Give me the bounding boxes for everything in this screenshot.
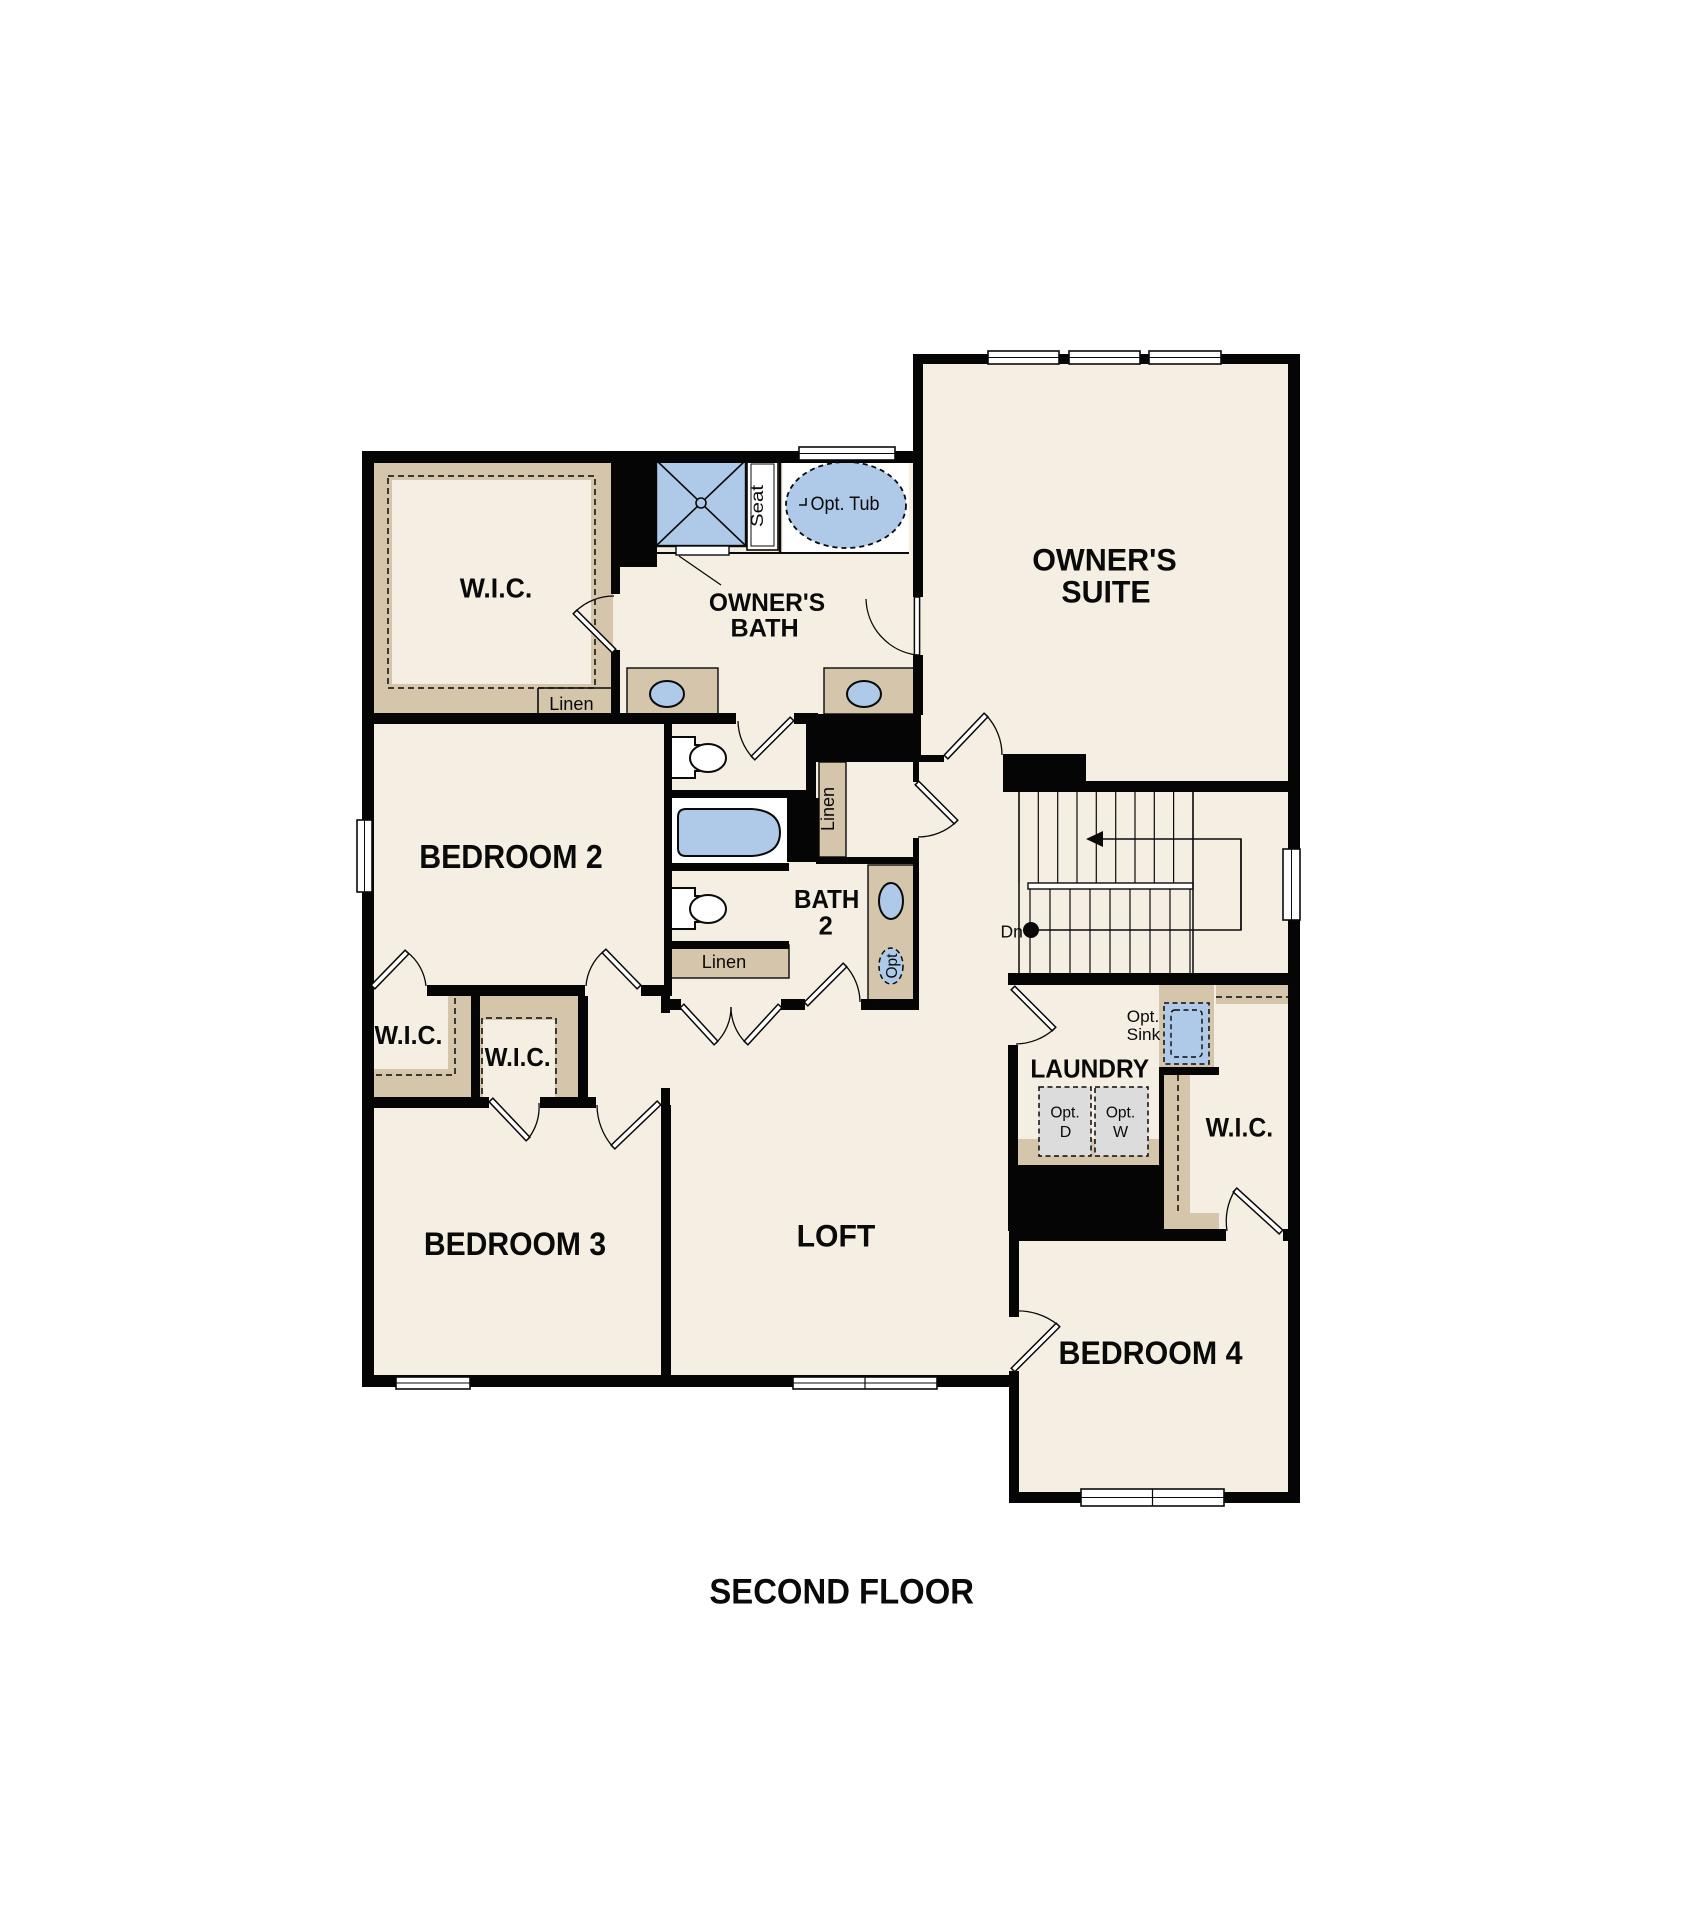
svg-text:BATH: BATH <box>731 616 799 643</box>
svg-text:D: D <box>1060 1124 1072 1141</box>
svg-text:Linen: Linen <box>818 787 838 831</box>
svg-text:BEDROOM 3: BEDROOM 3 <box>424 1226 606 1262</box>
svg-text:W.I.C.: W.I.C. <box>460 573 533 604</box>
svg-text:Opt.: Opt. <box>1106 1105 1135 1122</box>
svg-text:SECOND FLOOR: SECOND FLOOR <box>709 1573 974 1612</box>
svg-text:W.I.C.: W.I.C. <box>375 1022 443 1050</box>
svg-text:Dn: Dn <box>1001 922 1023 942</box>
svg-text:OWNER'S: OWNER'S <box>709 590 825 617</box>
svg-text:OWNER'S: OWNER'S <box>1032 543 1177 578</box>
svg-text:W.I.C.: W.I.C. <box>485 1044 551 1072</box>
svg-text:LOFT: LOFT <box>797 1218 876 1253</box>
svg-text:BEDROOM 2: BEDROOM 2 <box>419 838 603 875</box>
svg-text:Opt.: Opt. <box>1050 1105 1079 1122</box>
svg-text:Seat: Seat <box>747 485 767 527</box>
svg-text:W: W <box>1113 1124 1129 1141</box>
svg-text:LAUNDRY: LAUNDRY <box>1030 1054 1149 1084</box>
svg-text:2: 2 <box>819 913 833 941</box>
svg-text:Opt. Tub: Opt. Tub <box>811 493 880 515</box>
svg-text:SUITE: SUITE <box>1061 575 1150 610</box>
svg-text:Sink: Sink <box>1127 1026 1161 1044</box>
svg-text:BEDROOM 4: BEDROOM 4 <box>1059 1335 1243 1371</box>
svg-text:Linen: Linen <box>549 693 593 714</box>
svg-text:Opt.: Opt. <box>1127 1008 1160 1026</box>
svg-text:Linen: Linen <box>702 951 746 972</box>
svg-text:BATH: BATH <box>794 886 859 914</box>
svg-text:W.I.C.: W.I.C. <box>1206 1112 1274 1143</box>
svg-text:Opt: Opt <box>884 953 901 979</box>
